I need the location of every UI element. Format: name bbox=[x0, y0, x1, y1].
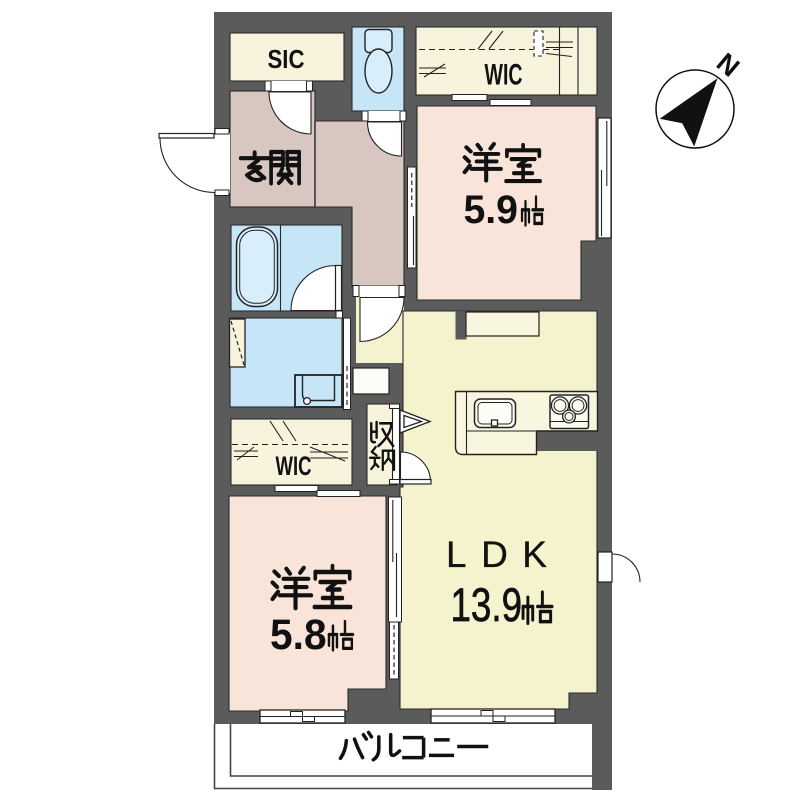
svg-text:LDK: LDK bbox=[446, 534, 561, 575]
svg-text:SIC: SIC bbox=[268, 44, 305, 74]
svg-text:WIC: WIC bbox=[276, 451, 312, 481]
svg-text:13.9: 13.9 bbox=[451, 578, 523, 631]
svg-text:5.8: 5.8 bbox=[270, 611, 327, 659]
svg-text:WIC: WIC bbox=[485, 59, 523, 92]
svg-text:5.9: 5.9 bbox=[463, 188, 518, 232]
